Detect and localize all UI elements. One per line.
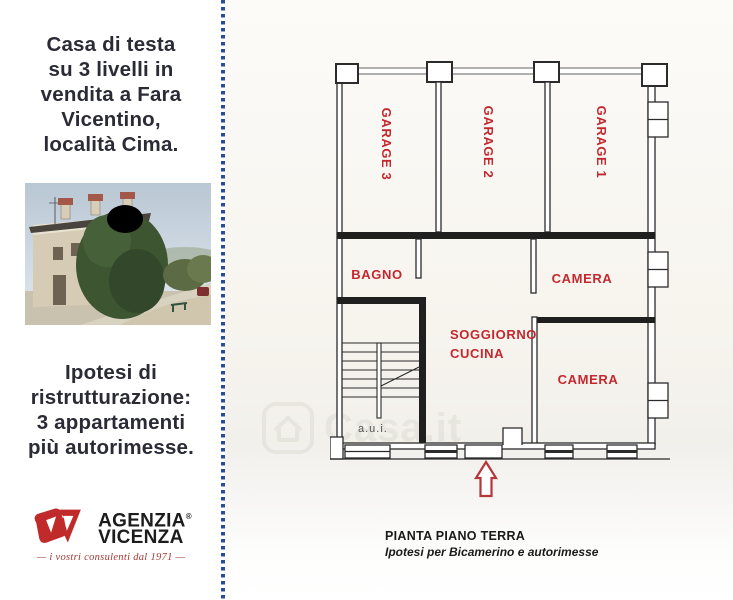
room-label-garage1: GARAGE 1 — [594, 106, 609, 179]
room-label-garage2: GARAGE 2 — [481, 106, 496, 179]
room-label-camera-top: CAMERA — [552, 271, 613, 286]
info-panel: Casa di testa su 3 livelli in vendita a … — [0, 0, 222, 600]
room-label-bagno: BAGNO — [351, 267, 402, 282]
agency-tagline: — i vostri consulenti dal 1971 — — [0, 552, 222, 563]
agency-logo: AGENZIA® VICENZA — i vostri consulenti d… — [0, 505, 222, 563]
dotted-divider — [221, 0, 225, 600]
headline-line: vendita a Fara — [0, 82, 222, 107]
room-label-camera-bottom: CAMERA — [558, 372, 619, 387]
plan-caption-subtitle: Ipotesi per Bicamerino e autorimesse — [385, 545, 598, 559]
property-photo — [25, 183, 211, 325]
headline: Casa di testa su 3 livelli in vendita a … — [0, 32, 222, 157]
room-label-cucina: CUCINA — [450, 346, 504, 361]
renovation-line: più autorimesse. — [0, 435, 222, 460]
listing-flyer: Casa.it Casa di testa su 3 livelli in ve… — [0, 0, 733, 600]
renovation-line: ristrutturazione: — [0, 385, 222, 410]
renovation-line: Ipotesi di — [0, 360, 222, 385]
room-label-soggiorno: SOGGIORNO — [450, 327, 537, 342]
headline-line: Casa di testa — [0, 32, 222, 57]
entrance-arrow-icon — [476, 462, 496, 496]
registered-mark: ® — [186, 512, 192, 521]
room-label-garage3: GARAGE 3 — [379, 108, 394, 181]
headline-line: su 3 livelli in — [0, 57, 222, 82]
plan-caption: PIANTA PIANO TERRA Ipotesi per Bicamerin… — [385, 529, 598, 559]
headline-line: Vicentino, — [0, 107, 222, 132]
room-label-aui: a.u.i. — [358, 423, 388, 435]
renovation-note: Ipotesi di ristrutturazione: 3 appartame… — [0, 360, 222, 460]
floor-plan: GARAGE 3 GARAGE 2 GARAGE 1 BAGNO CAMERA … — [330, 55, 675, 505]
agency-logo-icon — [30, 505, 92, 549]
agency-name-bottom: VICENZA — [98, 529, 192, 546]
renovation-line: 3 appartamenti — [0, 410, 222, 435]
headline-line: località Cima. — [0, 132, 222, 157]
plan-caption-title: PIANTA PIANO TERRA — [385, 529, 598, 543]
agency-name: AGENZIA® VICENZA — [98, 508, 192, 546]
